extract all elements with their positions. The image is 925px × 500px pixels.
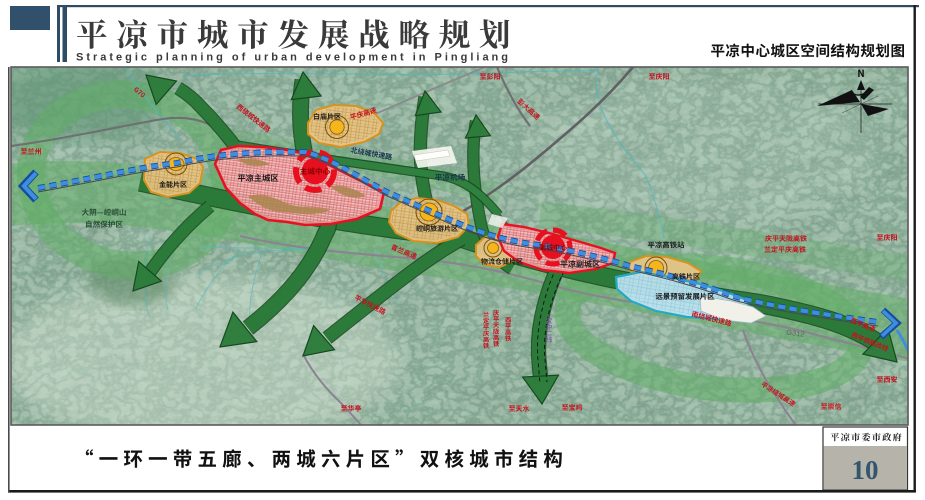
- svg-text:Strategic planning of urban de: Strategic planning of urban development …: [76, 52, 508, 64]
- svg-text:10: 10: [852, 455, 879, 485]
